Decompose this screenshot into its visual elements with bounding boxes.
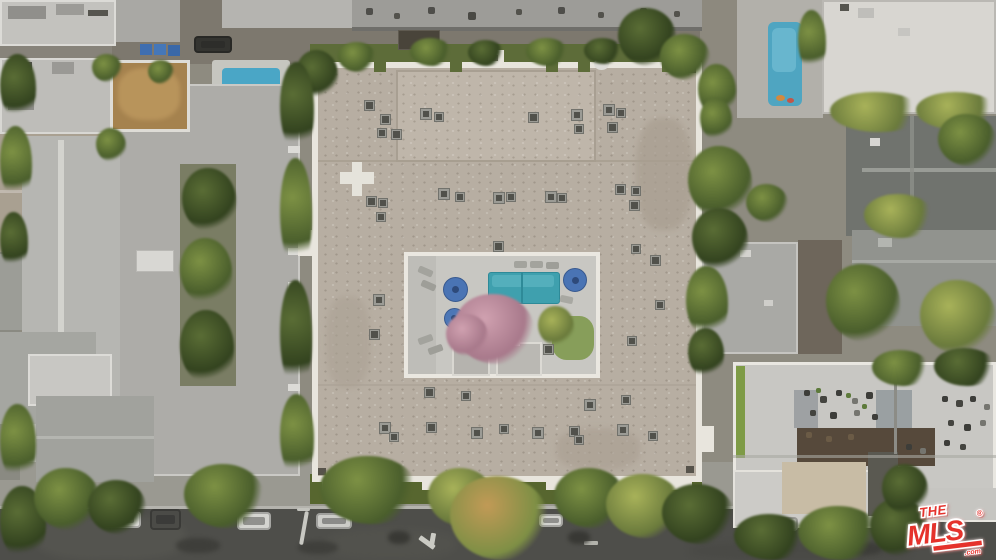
roof-corner-vent <box>686 466 694 473</box>
street-stain <box>568 531 590 544</box>
rooftop-furniture <box>810 410 816 416</box>
parapet-gap <box>578 62 590 72</box>
rooftop-furniture <box>598 12 604 18</box>
parked-van <box>150 509 181 530</box>
tree-canopy <box>92 54 122 82</box>
tree-canopy <box>662 484 734 544</box>
hvac-unit <box>378 198 388 208</box>
lounge-chair <box>546 262 559 269</box>
hvac-unit <box>574 124 584 134</box>
hvac-unit <box>461 391 471 401</box>
rooftop-furniture <box>816 388 821 393</box>
leftbottom-roof-ridge <box>36 436 154 439</box>
hvac-unit <box>603 104 615 116</box>
hvac-unit <box>615 184 626 195</box>
central-roof-stain <box>636 118 692 230</box>
hvac-unit <box>557 193 567 203</box>
topright-house-vent <box>870 138 880 146</box>
rooftop-furniture <box>674 11 680 17</box>
rooftop-furniture <box>394 13 400 19</box>
midright-house-ridge <box>852 260 996 263</box>
hvac-unit <box>499 424 509 434</box>
tree-canopy <box>830 92 922 132</box>
rooftop-furniture <box>516 9 522 15</box>
hvac-unit <box>373 294 385 306</box>
tree-canopy <box>798 506 880 560</box>
central-roof-stain <box>326 296 370 388</box>
lounge-chair <box>530 261 543 268</box>
pool-lane-line <box>521 272 523 304</box>
tree-canopy <box>88 480 146 534</box>
street-stain <box>176 538 220 553</box>
tree-canopy <box>688 328 724 378</box>
hvac-unit <box>629 200 640 211</box>
hvac-unit <box>631 244 641 254</box>
pool-float <box>776 95 785 101</box>
tree-canopy <box>280 62 314 154</box>
tree-canopy <box>864 194 934 238</box>
tree-canopy <box>798 10 826 72</box>
tree-canopy <box>96 128 126 162</box>
white-building-vent <box>858 8 874 18</box>
rooftop-furniture <box>468 12 476 20</box>
hvac-unit <box>650 255 661 266</box>
rooftop-furniture <box>984 404 990 410</box>
tree-canopy <box>938 114 996 166</box>
tree-canopy <box>338 42 376 72</box>
aerial-photo: THE MLS ® .com <box>0 0 996 560</box>
rooftop-furniture <box>970 396 976 402</box>
hvac-unit <box>424 387 435 398</box>
topleft-roof-unit <box>56 4 84 15</box>
rooftop-furniture <box>852 398 858 404</box>
rooftop-furniture <box>804 390 810 396</box>
modern-wood-deck <box>797 428 935 466</box>
tree-canopy <box>526 38 568 66</box>
parapet-gap <box>450 62 462 72</box>
tree-canopy <box>184 464 264 528</box>
tree-canopy <box>0 54 36 120</box>
rooftop-furniture <box>942 396 948 402</box>
tree-canopy <box>692 208 748 270</box>
modern-turf-strip <box>736 366 745 458</box>
rooftop-furniture <box>830 412 837 419</box>
logo-registered-mark: ® <box>976 508 983 518</box>
rooftop-furniture <box>960 444 966 450</box>
tree-canopy <box>446 314 488 356</box>
topleft-roof-unit <box>8 6 46 19</box>
hvac-unit <box>376 212 386 222</box>
tree-canopy <box>0 126 32 200</box>
umbrella-hub <box>572 277 579 284</box>
hvac-unit <box>584 399 596 411</box>
central-roof-seam <box>318 384 696 386</box>
rooftop-furniture <box>820 396 827 403</box>
hvac-unit <box>621 395 631 405</box>
lounge-chair <box>514 261 527 268</box>
modern-edge-line <box>733 455 996 458</box>
hvac-unit <box>420 108 432 120</box>
tree-canopy <box>468 40 504 66</box>
rooftop-furniture <box>846 393 851 398</box>
hvac-unit <box>528 112 539 123</box>
tree-canopy <box>410 38 452 66</box>
rooftop-furniture <box>866 392 873 399</box>
recycle-bin <box>168 45 180 56</box>
hvac-unit <box>493 241 504 252</box>
hvac-unit <box>364 100 375 111</box>
rooftop-furniture <box>906 444 912 450</box>
lamp-post-arm <box>297 508 310 511</box>
topright-house-ridge <box>862 168 996 172</box>
rooftop-furniture <box>862 404 867 409</box>
recycle-bin <box>140 44 152 55</box>
midright-house-vent <box>878 238 892 247</box>
tree-canopy <box>182 168 236 232</box>
tree-canopy <box>734 514 806 560</box>
tree-canopy <box>872 350 930 386</box>
pool-shallow <box>492 275 554 287</box>
hvac-unit <box>631 186 641 196</box>
hvac-unit <box>648 431 658 441</box>
hvac-unit <box>369 329 380 340</box>
rooftop-furniture <box>836 390 842 396</box>
rooftop-furniture <box>872 414 878 420</box>
hvac-unit <box>455 192 465 202</box>
topleft-roof-b <box>116 0 180 42</box>
rooftop-furniture <box>558 7 565 14</box>
parapet-tab-right <box>700 426 714 452</box>
tree-canopy <box>746 184 788 222</box>
tree-canopy <box>826 264 900 342</box>
central-roof-unit-white <box>340 172 374 184</box>
hvac-unit <box>389 432 399 442</box>
hvac-unit <box>574 435 584 445</box>
tree-canopy <box>148 60 174 84</box>
street-stain <box>388 531 410 544</box>
hvac-unit <box>571 109 583 121</box>
umbrella-hub <box>452 286 459 293</box>
rooftop-furniture <box>948 420 954 426</box>
rooftop-furniture <box>920 448 926 454</box>
hvac-unit <box>627 336 637 346</box>
left-white-roof-unit <box>52 62 74 74</box>
rooftop-furniture <box>428 7 435 14</box>
hvac-unit <box>493 192 505 204</box>
leftbldg-roof-unit <box>136 250 174 272</box>
topright-pool-shallow <box>772 28 796 72</box>
street-stain <box>298 541 338 554</box>
rooftop-furniture <box>826 436 832 442</box>
white-building-vent <box>898 28 910 36</box>
rooftop-furniture <box>956 400 963 407</box>
rooftop-furniture <box>848 434 854 440</box>
rooftop-furniture <box>854 410 860 416</box>
tree-canopy <box>280 280 312 392</box>
top-roof-c <box>222 0 354 28</box>
hvac-unit <box>545 191 557 203</box>
hvac-unit <box>617 424 629 436</box>
midright-roof-vent <box>764 300 773 306</box>
rooftop-furniture <box>806 432 812 438</box>
alley-car <box>194 36 232 53</box>
hvac-unit <box>607 122 618 133</box>
tree-canopy <box>0 212 28 270</box>
hvac-unit <box>616 108 626 118</box>
hvac-unit <box>506 192 516 202</box>
mls-watermark-logo: THE MLS ® .com <box>899 491 993 559</box>
tree-canopy <box>920 280 996 354</box>
hvac-unit <box>532 427 544 439</box>
tree-canopy <box>0 404 36 482</box>
rooftop-furniture <box>366 8 373 15</box>
hvac-unit <box>438 188 450 200</box>
rooftop-furniture <box>944 440 950 446</box>
hvac-unit <box>434 112 444 122</box>
tree-canopy <box>538 306 574 346</box>
rooftop-furniture <box>980 420 986 426</box>
rooftop-furniture <box>964 424 971 431</box>
tree-canopy <box>180 238 232 304</box>
topleft-roof-pipe <box>88 10 108 16</box>
pool-float <box>787 98 794 103</box>
tree-canopy <box>280 158 312 270</box>
tree-canopy <box>700 98 732 140</box>
logo-com-text: .com <box>964 548 981 557</box>
white-building-hatch <box>840 4 849 11</box>
tree-canopy <box>584 38 622 64</box>
hvac-unit <box>655 300 665 310</box>
hvac-unit <box>380 114 391 125</box>
hvac-unit <box>471 427 483 439</box>
hvac-unit <box>543 344 554 355</box>
tree-canopy <box>280 394 314 480</box>
tree-canopy <box>180 310 234 384</box>
hvac-unit <box>391 129 402 140</box>
hvac-unit <box>426 422 437 433</box>
tree-canopy <box>934 348 996 386</box>
recycle-bin <box>154 44 166 55</box>
hvac-unit <box>366 196 377 207</box>
hvac-unit <box>377 128 387 138</box>
parapet-gap <box>374 62 386 72</box>
scene-layers <box>0 0 996 560</box>
